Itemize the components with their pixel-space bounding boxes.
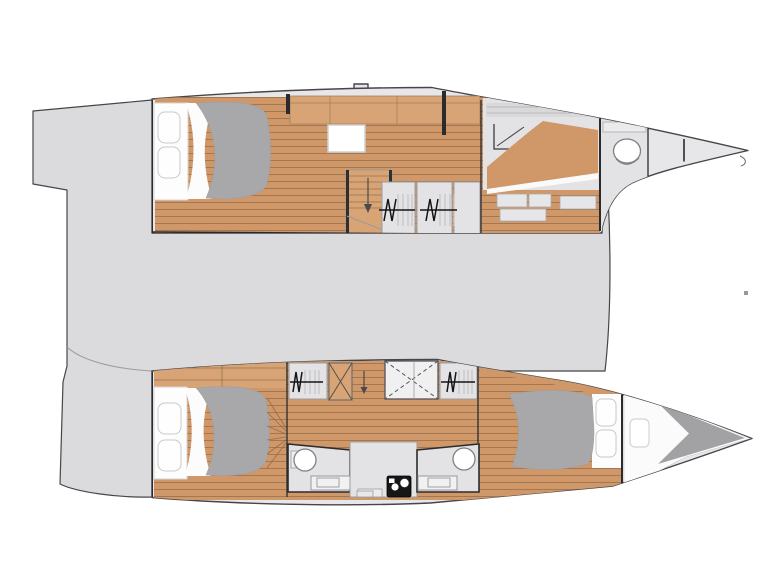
sofa-cushion	[500, 209, 546, 221]
bathroom-left	[288, 444, 350, 492]
sofa-cushion	[529, 194, 551, 207]
pillow	[158, 403, 181, 434]
cabinet-strip	[290, 96, 480, 124]
mast-stub	[442, 91, 446, 135]
companionway-landing	[350, 442, 417, 497]
locker-box	[454, 182, 480, 240]
forepeak-hatch	[630, 419, 649, 447]
top-hull	[152, 88, 748, 245]
top-hull-interior	[152, 91, 648, 244]
sofa-cushion	[497, 194, 527, 207]
pillow	[158, 147, 180, 178]
toilet-icon	[614, 139, 641, 163]
roof-hatch-icon	[328, 125, 365, 152]
duvet	[509, 390, 594, 469]
stove-burner	[391, 483, 398, 490]
pillow	[158, 112, 180, 143]
galley-cabinets	[290, 96, 480, 124]
hanging-lockers-top	[379, 182, 480, 240]
bottom-hull	[152, 360, 752, 505]
stove-burner	[400, 478, 409, 487]
sofa-cushion	[560, 196, 596, 209]
pillow	[596, 399, 616, 426]
toilet-icon	[453, 448, 475, 470]
locker-box	[417, 182, 452, 240]
pillow	[596, 430, 616, 457]
mast-stub	[286, 94, 290, 114]
toilet-icon	[294, 449, 316, 471]
bottom-hull-interior	[152, 361, 750, 500]
pillow	[158, 440, 181, 471]
forepeak	[624, 392, 750, 489]
catamaran-floorplan	[0, 0, 770, 577]
anchor-roller	[740, 156, 745, 166]
transom-step	[357, 491, 373, 497]
saloon-area	[483, 98, 600, 221]
bathroom-right	[417, 444, 479, 492]
vanity-shelf	[603, 122, 646, 132]
marker-dot	[744, 291, 748, 295]
floorplan-canvas	[0, 0, 770, 577]
window-band	[486, 103, 598, 117]
stove-detail	[389, 479, 395, 484]
